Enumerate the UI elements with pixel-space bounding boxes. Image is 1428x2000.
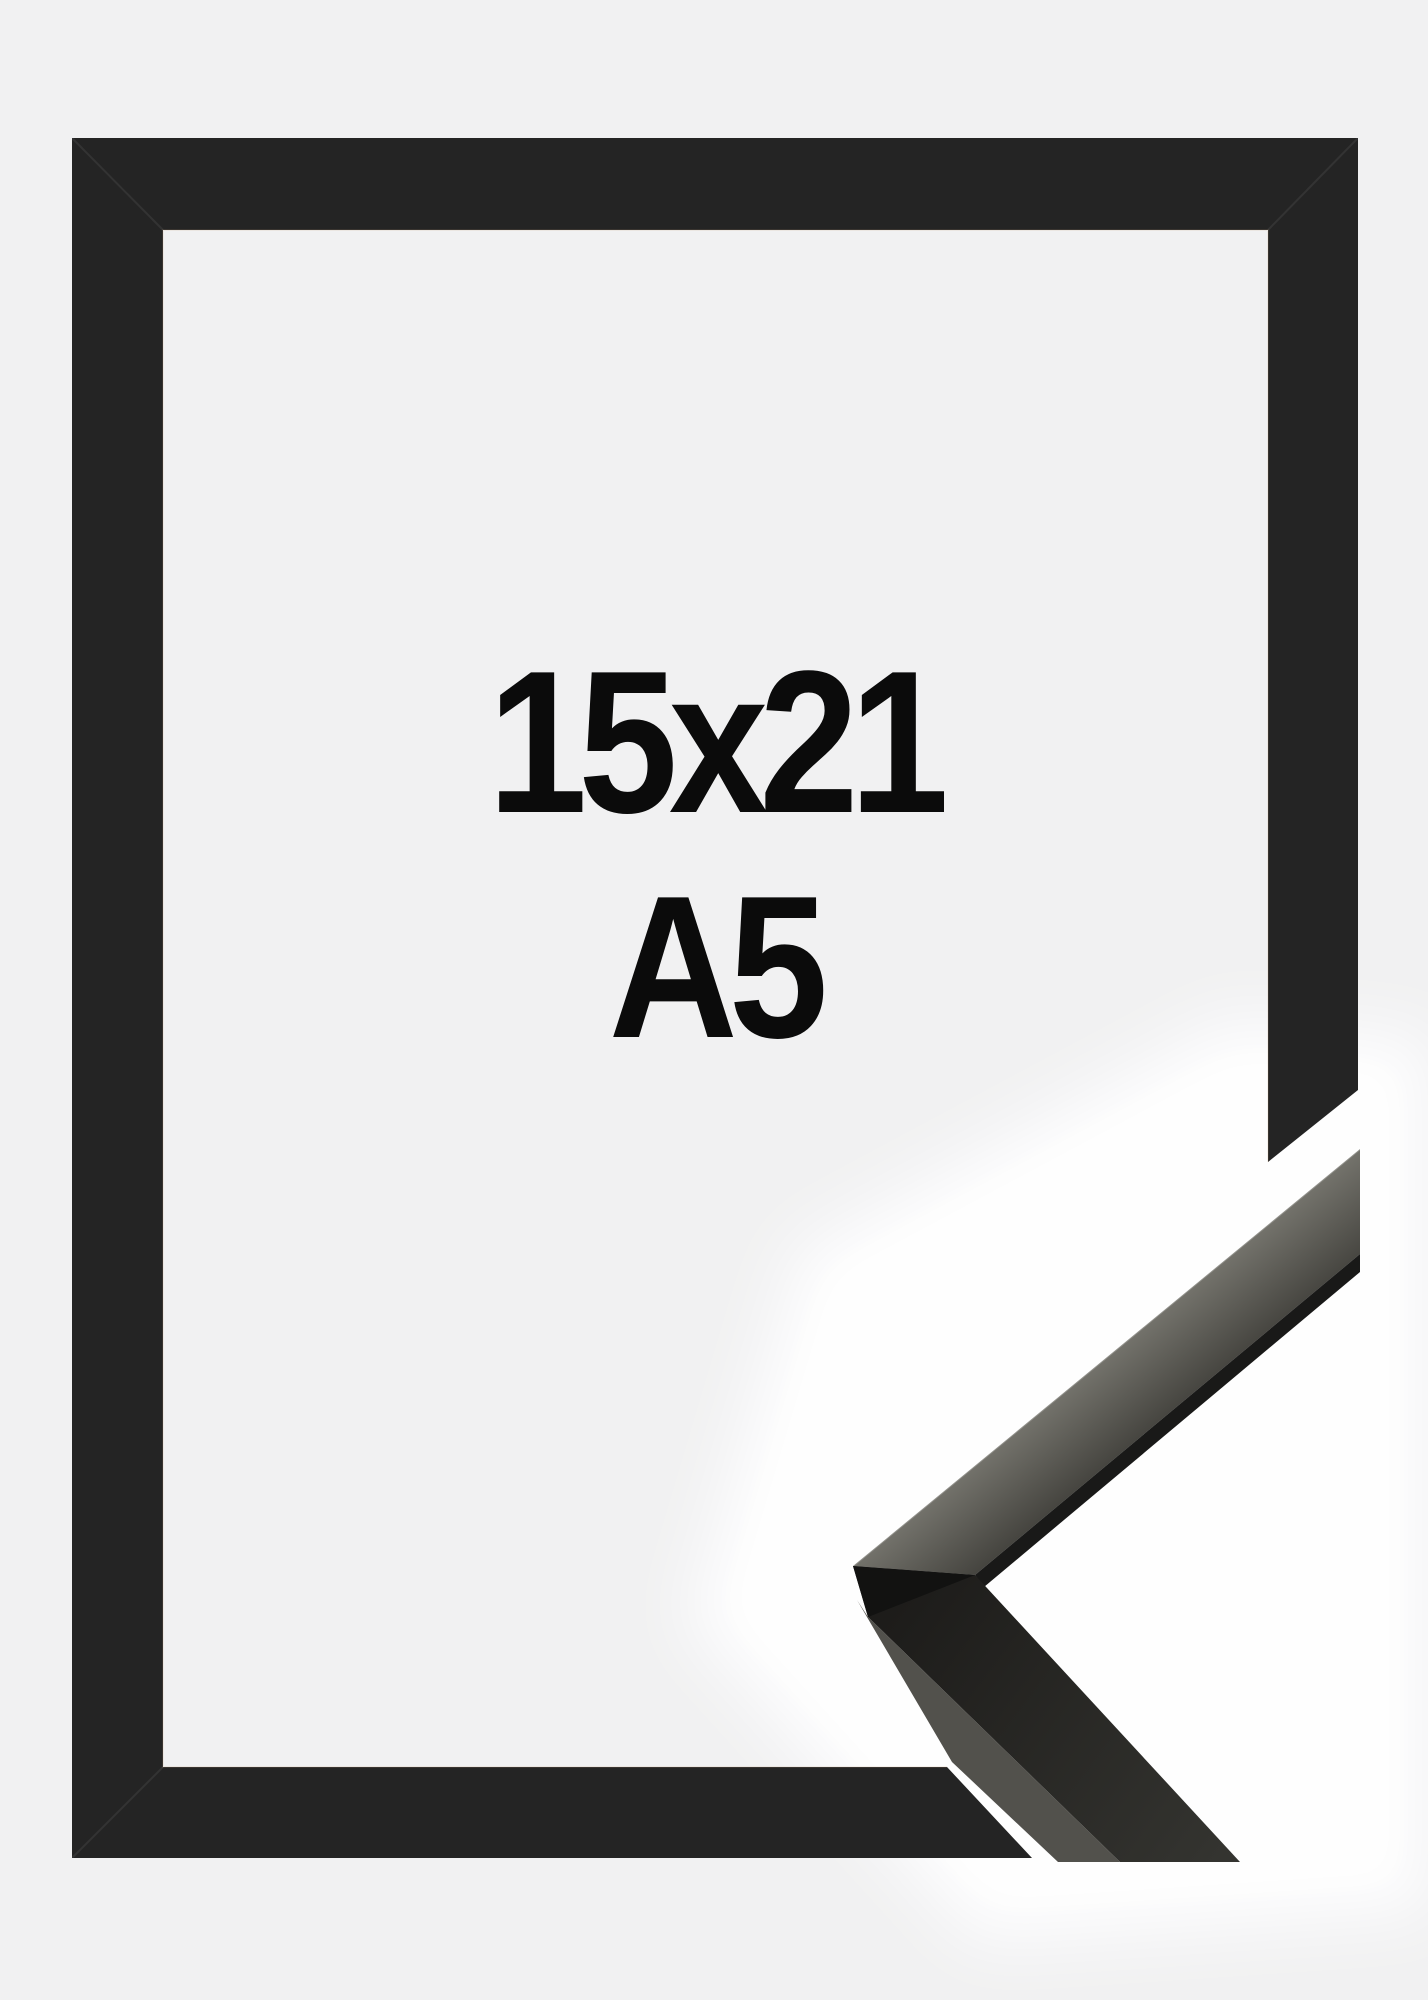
format-label: A5: [86, 866, 1343, 1069]
size-label: 15x21: [86, 641, 1343, 844]
product-image: 15x21 A5: [0, 0, 1428, 2000]
